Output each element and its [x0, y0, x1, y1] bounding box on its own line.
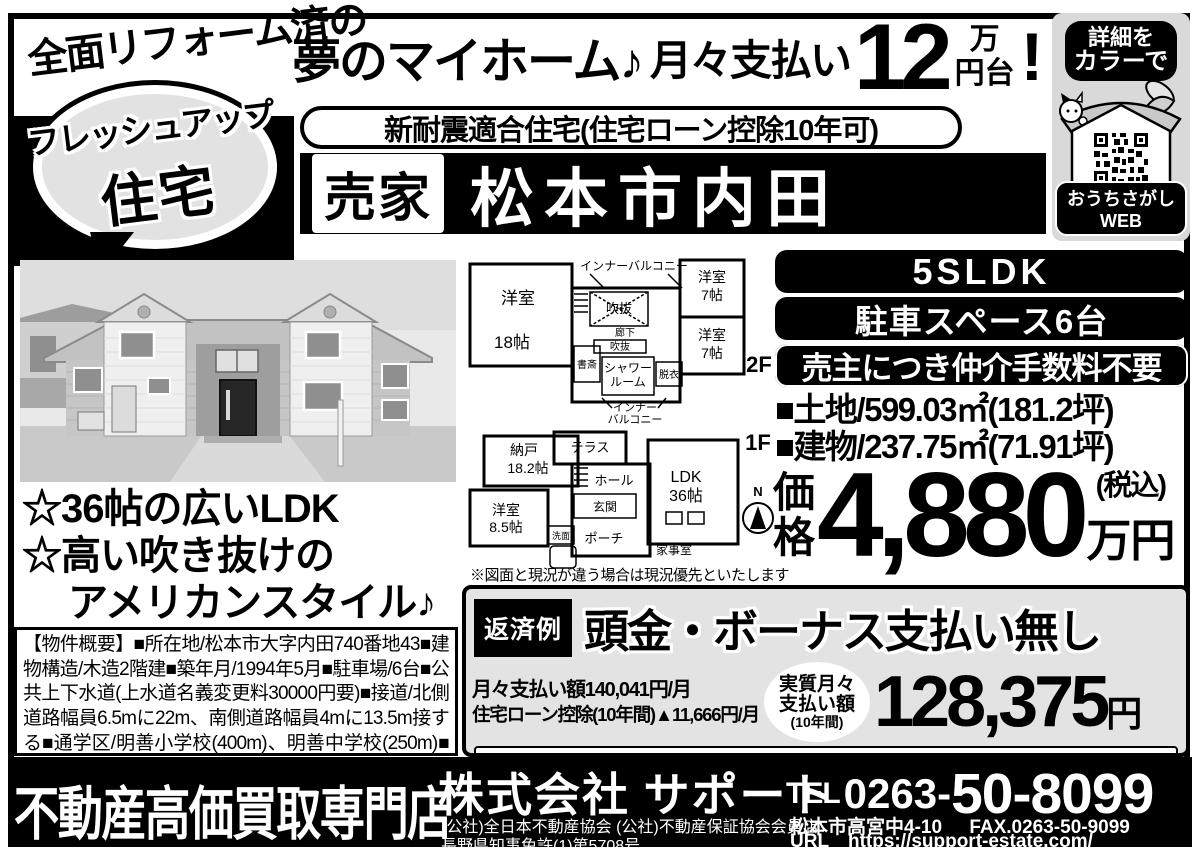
floorplan-2f: インナーバルコニー 洋室 18帖 吹抜 廊下 吹抜 書斎 シャワー ルーム 脱衣… [462, 250, 774, 426]
property-location-title: 松本市内田 [470, 148, 840, 240]
price-suffix: (税込) 万円 [1086, 462, 1174, 569]
fp2-shower1: シャワー [604, 361, 652, 375]
price-label-char2: 格 [773, 516, 815, 560]
price-label-char1: 価 [773, 471, 815, 515]
wing-window [74, 368, 102, 392]
fp1-porch: ポーチ [584, 531, 623, 546]
tel-label: TEL [786, 777, 840, 811]
fp2-room7a-size: 7帖 [701, 287, 723, 303]
repayment-detail-row: 月々支払い額140,041円/月 住宅ローン控除(10年間)▲11,666円/月… [472, 662, 1180, 742]
water-heater [112, 386, 136, 432]
yard-pole [338, 400, 343, 466]
gable-vent [324, 306, 336, 318]
monthly-payment-value: 12 [854, 19, 947, 94]
tower-window-small [148, 378, 170, 394]
monthly-unit: 万 円台 [955, 25, 1015, 89]
monthly-payment-line: 月々支払い額140,041円/月 [472, 677, 764, 703]
entry-steps [204, 436, 282, 443]
compass-n-label: N [753, 484, 762, 499]
bubble-text: フレッシュアップ 住宅 [18, 65, 291, 269]
fp1-utility: 家事室 [656, 542, 692, 557]
url-label: URL [790, 831, 829, 852]
tower-window-lower [304, 382, 342, 410]
real-payment-label3: (10年間) [791, 715, 844, 730]
compass-needle [750, 506, 766, 529]
fp2-room7b-size: 7帖 [701, 345, 723, 361]
bubble-line2: 住宅 [96, 145, 221, 240]
footer-band: 不動産高価買取専門店 株式会社 サポート (公社)全日本不動産協会 (公社)不動… [8, 757, 1192, 847]
feature-list: ☆36帖の広いLDK ☆高い吹き抜けの アメリカンスタイル♪ [22, 486, 435, 626]
fp2-dressing: 脱衣 [659, 368, 679, 381]
fp2-shower2: ルーム [610, 375, 646, 389]
wing-window [382, 364, 408, 388]
real-payment-label1: 実質月々 [779, 675, 855, 695]
floorplan-1f: テラス 納戸 18.2帖 ホール 玄関 洋室 8.5帖 洗面 ポーチ 家事室 L… [462, 428, 774, 570]
repayment-headline: 頭金・ボーナス支払い無し [584, 595, 1100, 660]
repayment-header-row: 返済例 頭金・ボーナス支払い無し [474, 595, 1178, 660]
repayment-badge: 返済例 [474, 599, 572, 657]
real-payment-label2: 支払い額 [779, 695, 855, 715]
gable-vent [138, 306, 150, 318]
fp1-room85-name: 洋室 [492, 502, 520, 518]
earthquake-standard-badge: 新耐震適合住宅(住宅ローン控除10年可) [300, 106, 962, 149]
loan-terms-note: ※八十二銀行住宅ローン変動金利1.1%、35年返済(420回)、借入金額合計4,… [474, 746, 1178, 757]
fp1-ldk-size: 36帖 [669, 487, 703, 505]
repayment-example-box: 返済例 頭金・ボーナス支払い無し 月々支払い額140,041円/月 住宅ローン控… [462, 585, 1190, 757]
real-payment-circle: 実質月々 支払い額 (10年間) [764, 662, 870, 742]
fp1-storage-size: 18.2帖 [507, 460, 548, 476]
detail-color-badge: 詳細を カラーで [1065, 21, 1177, 81]
monthly-payment-label: 月々支払い [650, 27, 850, 88]
cat-eye [1067, 110, 1070, 113]
tower-window-upper [120, 332, 154, 358]
fresh-up-bubble: フレッシュアップ 住宅 [28, 80, 282, 254]
fp1-washroom: 洗面 [552, 530, 570, 541]
fp2-balcony-top: インナーバルコニー [580, 259, 688, 273]
property-overview: 【物件概要】■所在地/松本市大字内田740番地43■建物構造/木造2階建■築年月… [14, 627, 458, 756]
url-row: URL https://support-estate.com/ [790, 831, 1093, 853]
fp2-void1: 吹抜 [606, 301, 632, 316]
exclamation-mark: ! [1021, 18, 1044, 96]
fp1-terrace: テラス [571, 440, 610, 455]
title-band: 売家 松本市内田 [300, 153, 1046, 234]
cat-head-icon [1060, 100, 1082, 122]
feature-2: ☆高い吹き抜けの [22, 533, 435, 580]
layout-badge: 5SLDK [775, 250, 1188, 293]
no-broker-fee-badge: 売主につき仲介手数料不要 [775, 344, 1188, 387]
unit-endai: 円台 [955, 59, 1015, 89]
fp1-storage-name: 納戸 [510, 442, 538, 458]
real-estate-flyer: 全面リフォーム済の フレッシュアップ 住宅 夢のマイホーム♪ 月々支払い 12 … [0, 0, 1200, 861]
qr-panel: 詳細を カラーで [1052, 13, 1190, 241]
web-service-label: おうちさがしWEB [1055, 181, 1187, 236]
real-payment-amount: 128,375円 [874, 670, 1142, 735]
website-url: https://support-estate.com/ [848, 831, 1093, 852]
fp2-study: 書斎 [577, 358, 597, 371]
license-number: 長野県知事免許(1)第5708号 [441, 832, 640, 856]
fp2-label: 2F [746, 352, 772, 377]
land-area: ■土地/599.03㎡(181.2坪) [775, 392, 1190, 429]
fp2-room7b-name: 洋室 [698, 327, 726, 343]
house-photo [20, 260, 456, 482]
fp1-hall: ホール [594, 473, 633, 488]
loan-deduction-line: 住宅ローン控除(10年間)▲11,666円/月 [472, 703, 764, 727]
tel-area-code: 0263- [844, 770, 951, 818]
price-value: 4,880 [817, 466, 1082, 564]
fp2-room7a-name: 洋室 [698, 269, 726, 285]
fp2-balcony-b2: バルコニー [608, 413, 663, 426]
door-handle [226, 390, 230, 420]
fp2-corridor: 廊下 [615, 326, 635, 339]
amount-unit: 円 [1106, 693, 1142, 734]
fp2-void2: 吹抜 [610, 340, 630, 353]
parking-badge: 駐車スペース6台 [775, 297, 1188, 340]
amount-digits: 128,375 [874, 662, 1106, 742]
fp1-label: 1F [745, 430, 771, 455]
wing-window [382, 400, 408, 420]
feature-1: ☆36帖の広いLDK [22, 486, 435, 533]
fp2-balcony-b1: インナー [613, 401, 657, 414]
tower-window-upper [306, 332, 340, 358]
fp1-entrance: 玄関 [593, 499, 617, 514]
price-unit: 万円 [1086, 504, 1174, 569]
fp2-room18-size: 18帖 [494, 333, 530, 352]
ac-unit [78, 412, 104, 430]
cat-eye [1075, 110, 1078, 113]
fp2-room18-name: 洋室 [501, 289, 535, 308]
detail-line2: カラーで [1065, 49, 1177, 74]
price-label: 価 格 [773, 471, 815, 559]
shop-type-headline: 不動産高価買取専門店 [14, 767, 451, 851]
dream-home-text: 夢のマイホーム♪ [292, 22, 642, 93]
repayment-lines: 月々支払い額140,041円/月 住宅ローン控除(10年間)▲11,666円/月 [472, 677, 764, 727]
price-block: 価 格 4,880 (税込) 万円 [773, 462, 1174, 569]
floorplan-note: ※図面と現況が違う場合は現況優先といたします [470, 564, 789, 585]
fp1-ldk-name: LDK [670, 469, 701, 486]
headline-row: 夢のマイホーム♪ 月々支払い 12 万 円台 ! [292, 18, 1043, 96]
unit-man: 万 [970, 25, 1000, 55]
for-sale-label: 売家 [312, 154, 444, 233]
tax-included-label: (税込) [1096, 462, 1165, 504]
feature-3: アメリカンスタイル♪ [68, 580, 435, 627]
detail-line1: 詳細を [1065, 26, 1177, 49]
cat-ear-right [1076, 93, 1082, 102]
front-door [220, 380, 256, 436]
fp1-room85-size: 8.5帖 [489, 519, 522, 535]
